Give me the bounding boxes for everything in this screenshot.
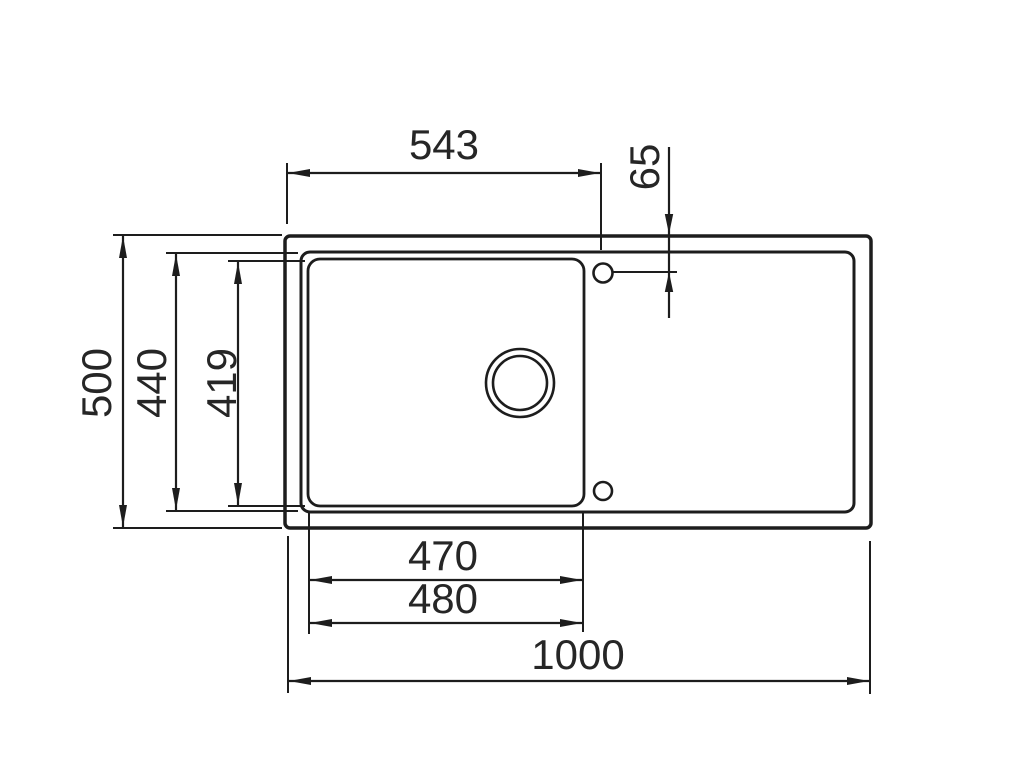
- tap-hole-top: [594, 264, 613, 283]
- dim-label-1000: 1000: [531, 631, 624, 678]
- sink-outer-outline: [285, 236, 871, 528]
- sink-body: [285, 236, 871, 528]
- drain-inner-circle: [493, 356, 547, 410]
- dim-overall-depth: 500: [73, 235, 282, 528]
- tap-hole-bottom: [594, 482, 612, 500]
- arrowhead-down: [665, 214, 673, 234]
- dim-label-419: 419: [198, 348, 245, 418]
- dim-label-470: 470: [408, 532, 478, 579]
- sink-dimension-diagram: 543 65 500 440 419: [0, 0, 1024, 768]
- dim-label-440: 440: [128, 348, 175, 418]
- dim-tap-hole-offset-x: 543: [287, 121, 601, 250]
- arrowhead-up: [665, 272, 673, 292]
- dim-label-543: 543: [409, 121, 479, 168]
- dim-label-65: 65: [621, 144, 668, 191]
- sink-rim-outline: [301, 252, 854, 512]
- drain-outer-circle: [486, 349, 554, 417]
- dim-bowl-depth: 419: [198, 261, 305, 506]
- dim-overall-width: 1000: [288, 536, 870, 694]
- dim-tap-hole-offset-y: 65: [613, 144, 677, 318]
- dim-label-480: 480: [408, 575, 478, 622]
- bowl-outline: [308, 259, 584, 506]
- dim-label-500: 500: [73, 348, 120, 418]
- drawing-canvas: 543 65 500 440 419: [0, 0, 1024, 768]
- dim-bowl-widths: 470 480: [309, 513, 583, 634]
